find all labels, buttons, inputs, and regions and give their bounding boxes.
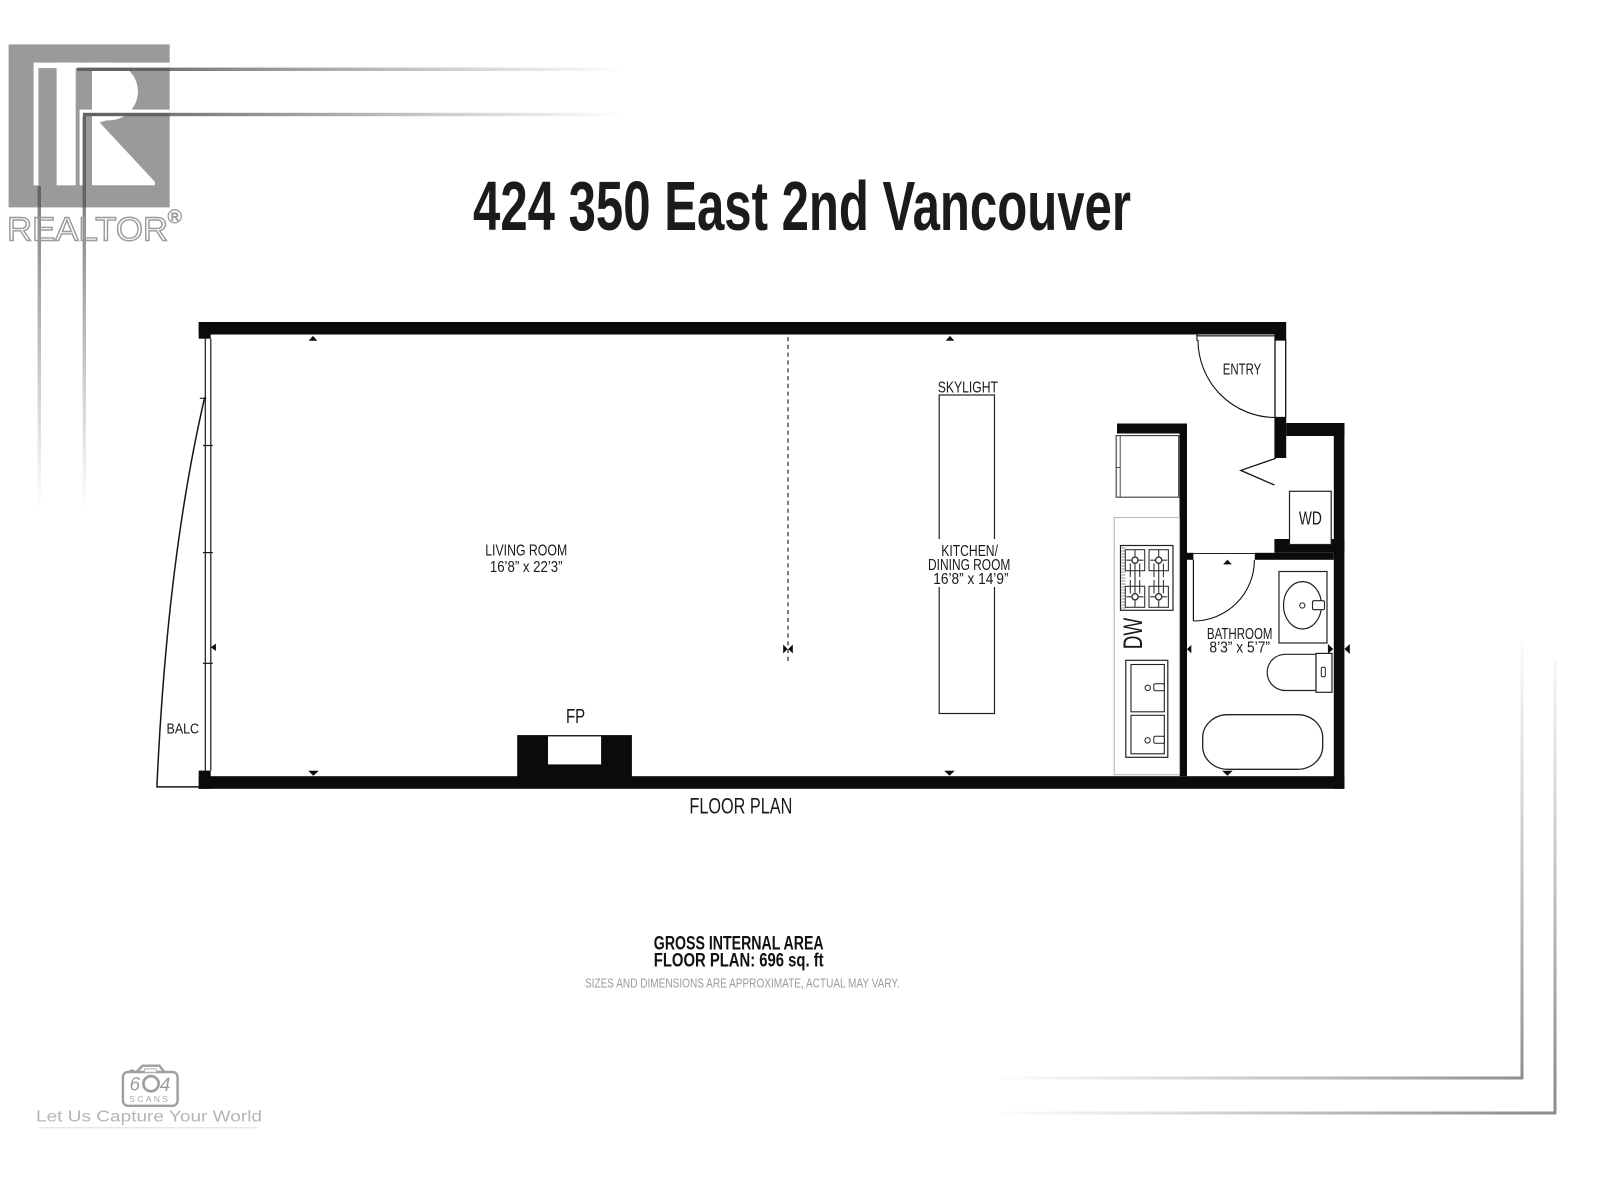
svg-text:SCANS: SCANS (129, 1094, 170, 1104)
svg-text:424 350 East 2nd Vancouver: 424 350 East 2nd Vancouver (473, 167, 1131, 245)
svg-text:ENTRY: ENTRY (1223, 362, 1262, 379)
svg-text:Let Us Capture Your World: Let Us Capture Your World (36, 1109, 262, 1126)
svg-text:DW: DW (1118, 617, 1148, 649)
svg-text:16’8” x 22’3”: 16’8” x 22’3” (490, 559, 563, 576)
svg-text:FP: FP (566, 706, 585, 728)
svg-text:6: 6 (130, 1075, 141, 1096)
svg-text:WD: WD (1299, 508, 1322, 529)
svg-text:SKYLIGHT: SKYLIGHT (938, 380, 998, 397)
svg-text:FLOOR PLAN: 696 sq. ft: FLOOR PLAN: 696 sq. ft (654, 948, 824, 971)
svg-text:FLOOR PLAN: FLOOR PLAN (689, 794, 792, 819)
svg-text:SIZES AND DIMENSIONS ARE APPRO: SIZES AND DIMENSIONS ARE APPROXIMATE, AC… (585, 976, 900, 991)
svg-text:R: R (171, 211, 179, 223)
svg-text:BALC: BALC (167, 721, 200, 737)
svg-text:16’8” x 14’9”: 16’8” x 14’9” (933, 571, 1008, 588)
svg-text:REALTOR: REALTOR (7, 211, 168, 248)
svg-text:8’3” x 5’7”: 8’3” x 5’7” (1209, 640, 1270, 657)
svg-text:LIVING ROOM: LIVING ROOM (485, 543, 567, 560)
